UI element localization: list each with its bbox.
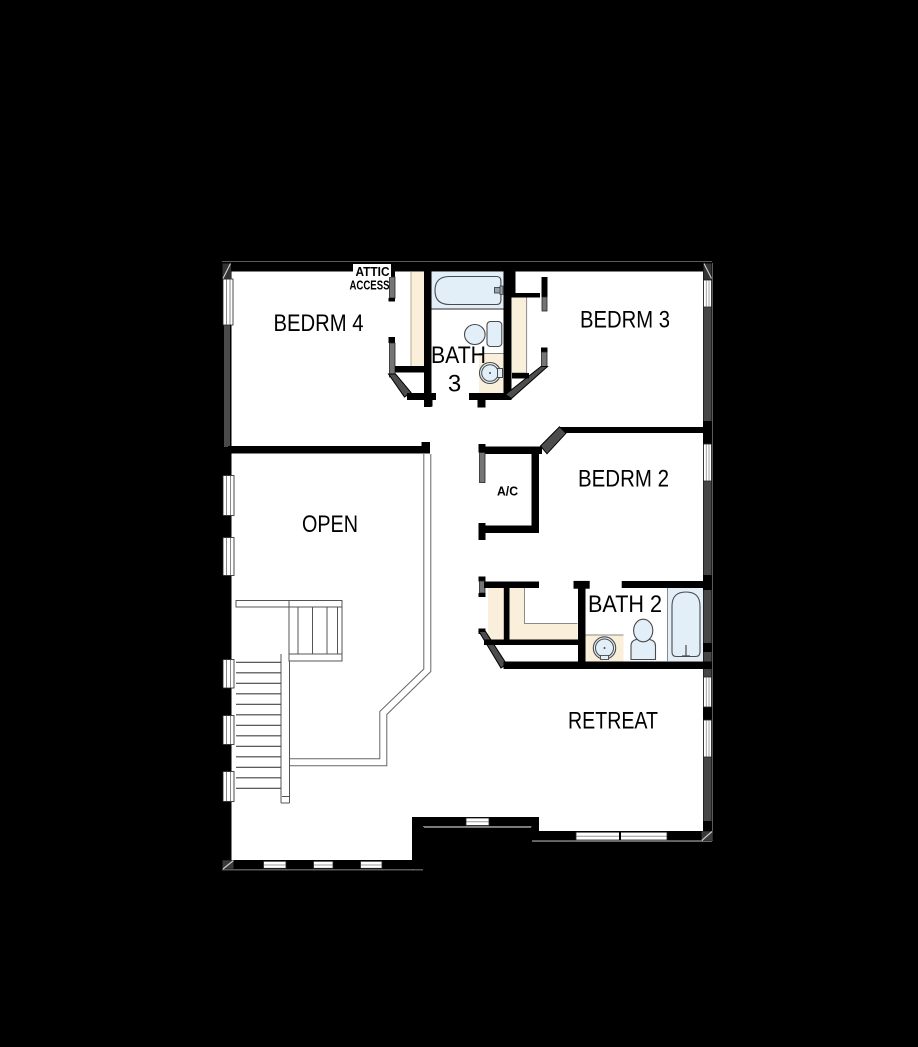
svg-text:BEDRM 4: BEDRM 4: [274, 310, 364, 337]
svg-text:BATH: BATH: [431, 342, 486, 369]
svg-text:BATH 2: BATH 2: [588, 591, 662, 618]
svg-text:BEDRM 2: BEDRM 2: [578, 466, 669, 493]
svg-text:OPEN: OPEN: [302, 511, 358, 538]
svg-text:RETREAT: RETREAT: [568, 708, 658, 735]
svg-text:A/C: A/C: [497, 484, 519, 499]
svg-text:BEDRM 3: BEDRM 3: [580, 307, 670, 334]
svg-text:3: 3: [448, 371, 461, 398]
svg-text:ACCESS: ACCESS: [350, 277, 390, 292]
